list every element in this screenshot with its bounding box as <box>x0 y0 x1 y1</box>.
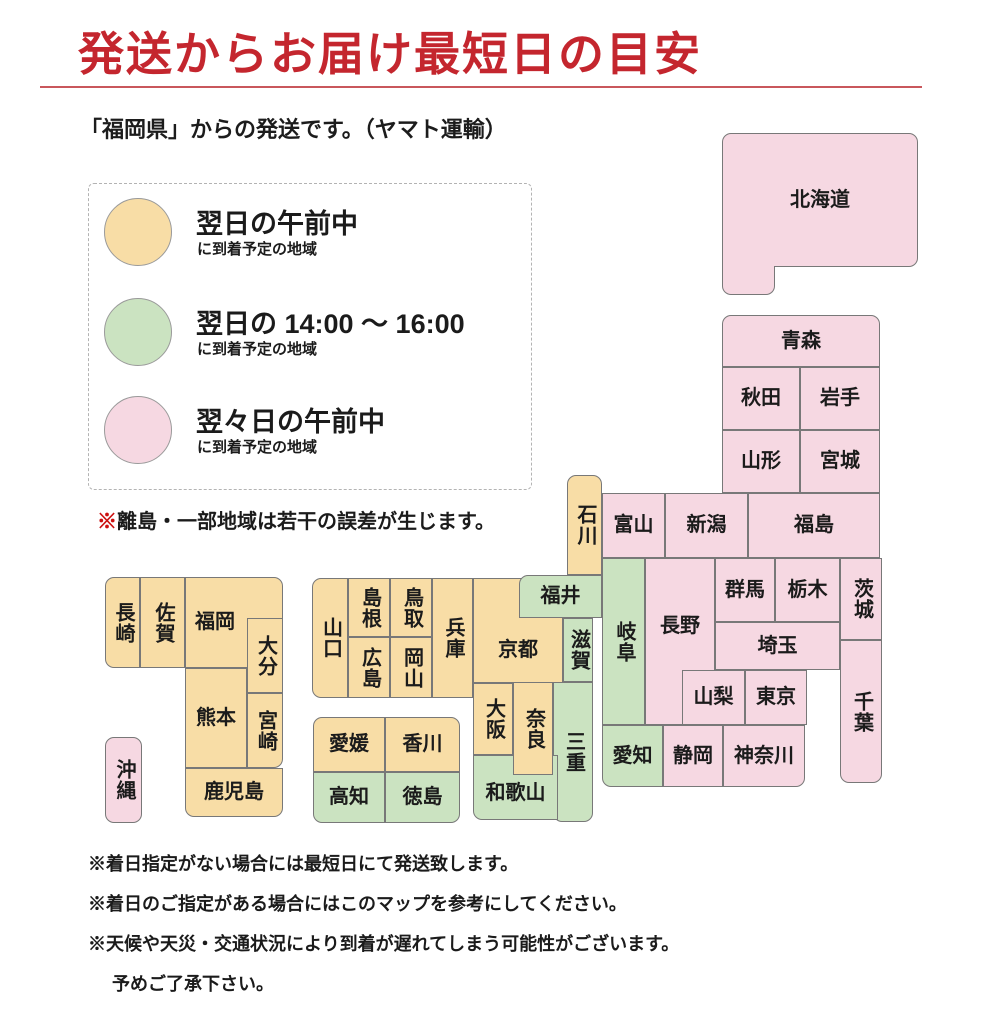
tile-hyogo: 兵庫 <box>432 578 473 698</box>
legend-dot-green <box>104 298 172 366</box>
tile-label-tochigi: 栃木 <box>788 580 828 601</box>
tile-oita: 大分 <box>247 618 283 693</box>
tile-saga: 佐賀 <box>140 577 185 668</box>
tile-ishikawa: 石川 <box>567 475 602 575</box>
tile-tokushima: 徳島 <box>385 772 460 823</box>
tile-tochigi: 栃木 <box>775 558 840 622</box>
tile-label-yamaguchi: 山口 <box>320 617 341 659</box>
legend-dot-orange <box>104 198 172 266</box>
tile-label-tottori: 鳥取 <box>401 587 422 629</box>
tile-label-saga: 佐賀 <box>152 602 173 644</box>
tile-mie: 三重 <box>553 682 593 822</box>
page-title: 発送からお届け最短日の目安 <box>78 18 702 84</box>
tile-ehime: 愛媛 <box>313 717 385 772</box>
tile-miyazaki: 宮崎 <box>247 693 283 768</box>
tile-nara: 奈良 <box>513 682 553 775</box>
legend-sub: に到着予定の地域 <box>197 238 317 259</box>
tile-label-niigata: 新潟 <box>687 515 727 536</box>
legend-title: 翌日の 14:00 ～ 16:00 <box>196 302 465 341</box>
note-asterisk: ※ <box>97 511 117 533</box>
tile-aichi: 愛知 <box>602 725 663 787</box>
tile-label-kagawa: 香川 <box>403 734 443 755</box>
tile-label-okayama: 岡山 <box>401 647 422 689</box>
tile-hiroshima: 広島 <box>348 637 390 698</box>
tile-hokkaido: 北海道 <box>722 133 918 267</box>
tile-chiba: 千葉 <box>840 640 882 783</box>
origin-subtitle: 「福岡県」からの発送です。（ヤマト運輸） <box>80 112 507 144</box>
tile-label-oita: 大分 <box>255 635 276 677</box>
tile-okayama: 岡山 <box>390 637 432 698</box>
legend-sub: に到着予定の地域 <box>197 338 317 359</box>
tile-label-yamanashi: 山梨 <box>694 687 734 708</box>
tile-label-nagano: 長野 <box>660 616 700 637</box>
tile-osaka: 大阪 <box>473 683 513 755</box>
tile-yamaguchi: 山口 <box>312 578 348 698</box>
islands-note-text: 離島・一部地域は若干の誤差が生じます。 <box>117 511 495 533</box>
tile-ibaraki: 茨城 <box>840 558 882 640</box>
tile-label-nagasaki: 長崎 <box>112 602 133 644</box>
tile-kumamoto: 熊本 <box>185 668 247 768</box>
tile-label-saitama: 埼玉 <box>758 636 798 657</box>
tile-label-akita: 秋田 <box>741 388 781 409</box>
tile-label-tokyo: 東京 <box>756 687 796 708</box>
tile-tokyo: 東京 <box>745 670 807 725</box>
tile-kanagawa: 神奈川 <box>723 725 805 787</box>
legend-dot-pink <box>104 396 172 464</box>
tile-label-fukuoka: 福岡 <box>195 612 235 633</box>
tile-saitama: 埼玉 <box>715 622 840 670</box>
tile-kagoshima: 鹿児島 <box>185 768 283 817</box>
title-underline <box>40 86 922 88</box>
tile-label-gunma: 群馬 <box>725 580 765 601</box>
tile-label-chiba: 千葉 <box>851 691 872 733</box>
tile-label-hiroshima: 広島 <box>359 647 380 689</box>
tile-label-toyama: 富山 <box>614 515 654 536</box>
tile-shimane: 島根 <box>348 578 390 637</box>
footnotes: ※着日指定がない場合には最短日にて発送致します。※着日のご指定がある場合にはこの… <box>88 850 948 1010</box>
tile-label-aichi: 愛知 <box>613 746 653 767</box>
tile-miyagi: 宮城 <box>800 430 880 493</box>
footnote-line-3: ※天候や天災・交通状況により到着が遅れてしまう可能性がございます。 <box>88 930 948 956</box>
footnote-line-4: 予めご了承下さい。 <box>88 970 948 996</box>
tile-okinawa: 沖縄 <box>105 737 142 823</box>
legend-title: 翌日の午前中 <box>196 202 358 241</box>
footnote-line-1: ※着日指定がない場合には最短日にて発送致します。 <box>88 850 948 876</box>
tile-label-hokkaido: 北海道 <box>790 190 850 211</box>
tile-yamanashi: 山梨 <box>682 670 745 725</box>
legend-title: 翌々日の午前中 <box>196 400 385 439</box>
tile-hokkaido-leg <box>722 266 775 295</box>
tile-label-kochi: 高知 <box>329 787 369 808</box>
tile-label-aomori: 青森 <box>781 331 821 352</box>
tile-toyama: 富山 <box>602 493 665 558</box>
tile-fukushima: 福島 <box>748 493 880 558</box>
tile-label-kanagawa: 神奈川 <box>734 746 794 767</box>
tile-label-shimane: 島根 <box>359 587 380 629</box>
tile-label-kyoto: 京都 <box>498 640 538 661</box>
tile-label-shiga: 滋賀 <box>568 629 589 671</box>
tile-label-tokushima: 徳島 <box>403 787 443 808</box>
tile-label-iwate: 岩手 <box>820 388 860 409</box>
tile-label-fukui: 福井 <box>541 586 581 607</box>
tile-gunma: 群馬 <box>715 558 775 622</box>
tile-shizuoka: 静岡 <box>663 725 723 787</box>
tile-label-okinawa: 沖縄 <box>113 759 134 801</box>
tile-tottori: 鳥取 <box>390 578 432 637</box>
tile-label-shizuoka: 静岡 <box>673 746 713 767</box>
tile-label-mie: 三重 <box>563 731 584 773</box>
tile-label-miyazaki: 宮崎 <box>255 710 276 752</box>
tile-label-osaka: 大阪 <box>483 698 504 740</box>
tile-iwate: 岩手 <box>800 367 880 430</box>
legend-box: 翌日の午前中 に到着予定の地域 翌日の 14:00 ～ 16:00 に到着予定の… <box>88 183 532 490</box>
tile-akita: 秋田 <box>722 367 800 430</box>
tile-gifu: 岐阜 <box>602 558 645 725</box>
tile-label-wakayama: 和歌山 <box>486 783 546 804</box>
tile-label-fukushima: 福島 <box>794 515 834 536</box>
tile-label-kumamoto: 熊本 <box>196 708 236 729</box>
tile-label-gifu: 岐阜 <box>613 621 634 663</box>
tile-label-nara: 奈良 <box>523 708 544 750</box>
tile-shiga: 滋賀 <box>563 618 593 682</box>
tile-aomori: 青森 <box>722 315 880 367</box>
tile-label-ibaraki: 茨城 <box>851 578 872 620</box>
tile-label-hyogo: 兵庫 <box>442 617 463 659</box>
footnote-line-2: ※着日のご指定がある場合にはこのマップを参考にしてください。 <box>88 890 948 916</box>
shipping-map-page: 発送からお届け最短日の目安 「福岡県」からの発送です。（ヤマト運輸） 翌日の午前… <box>0 0 1000 1000</box>
tile-label-ehime: 愛媛 <box>329 734 369 755</box>
tile-yamagata: 山形 <box>722 430 800 493</box>
legend-sub: に到着予定の地域 <box>197 436 317 457</box>
tile-niigata: 新潟 <box>665 493 748 558</box>
islands-note: ※離島・一部地域は若干の誤差が生じます。 <box>97 505 495 534</box>
tile-label-kagoshima: 鹿児島 <box>204 782 264 803</box>
tile-label-ishikawa: 石川 <box>574 504 595 546</box>
tile-kochi: 高知 <box>313 772 385 823</box>
tile-kagawa: 香川 <box>385 717 460 772</box>
tile-label-yamagata: 山形 <box>741 451 781 472</box>
tile-fukui: 福井 <box>519 575 602 618</box>
tile-label-miyagi: 宮城 <box>820 451 860 472</box>
tile-nagasaki: 長崎 <box>105 577 140 668</box>
